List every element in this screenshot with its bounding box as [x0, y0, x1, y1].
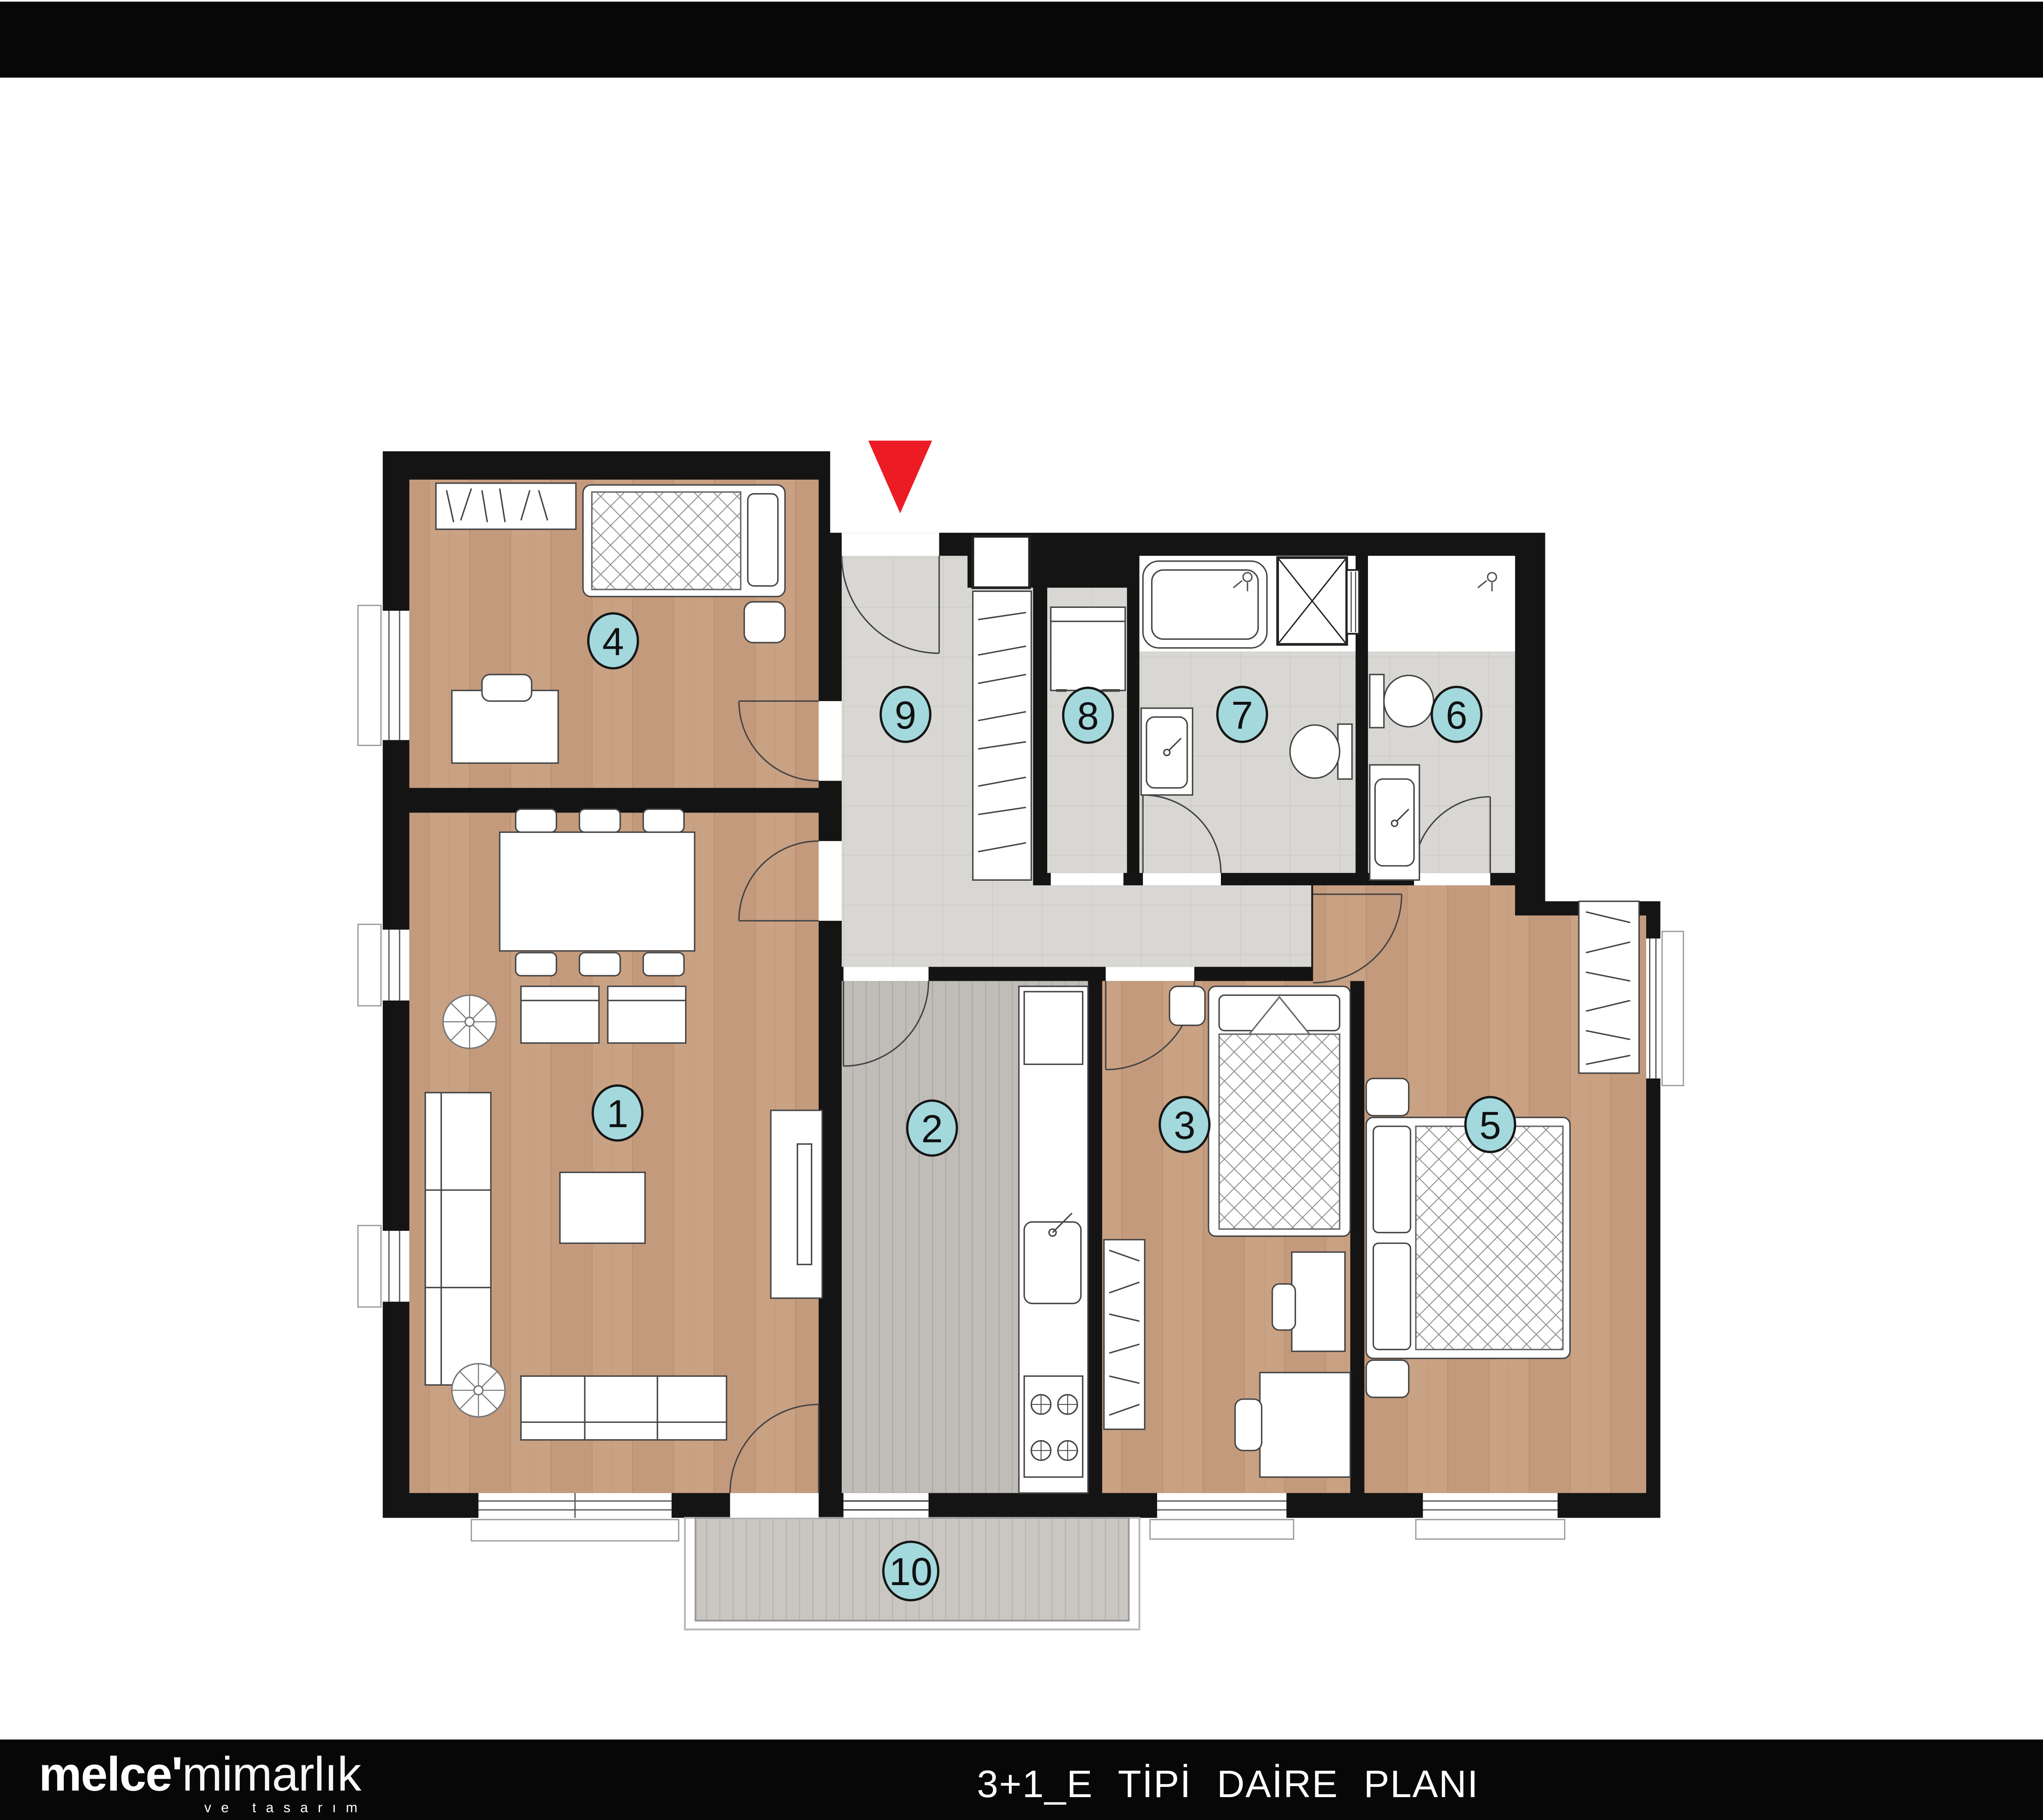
svg-text:8: 8: [1077, 695, 1099, 738]
chair-icon: [482, 674, 532, 701]
svg-text:4: 4: [602, 620, 624, 663]
nightstand-icon: [1366, 1360, 1409, 1397]
floor-plan-drawing: 1 2 3 4 5 6 7 8 9 10: [347, 409, 1737, 1634]
chair-icon: [1272, 1284, 1295, 1330]
badge-room-4: 4: [588, 613, 638, 668]
closet-icon: [436, 483, 576, 529]
stove-icon: [1024, 1376, 1083, 1477]
badge-room-6: 6: [1432, 687, 1481, 741]
double-bed-icon: [1366, 1117, 1570, 1358]
single-bed-icon: [1209, 986, 1350, 1236]
window-room5-bottom: [1416, 1493, 1565, 1539]
vent-grille: [1347, 570, 1359, 634]
wardrobe-icon: [1104, 1240, 1145, 1429]
plant-icon: [452, 1364, 505, 1417]
svg-text:7: 7: [1232, 694, 1253, 737]
fridge-icon: [1024, 992, 1083, 1064]
window-salon-left-1: [358, 925, 409, 1006]
badge-room-10: 10: [883, 1542, 938, 1600]
logo-tagline: ve tasarım: [204, 1800, 367, 1816]
studio-logo: melce'mimarlık: [39, 1750, 361, 1798]
room8-opening: [1051, 873, 1124, 885]
svg-text:2: 2: [921, 1108, 943, 1151]
svg-text:6: 6: [1446, 694, 1467, 737]
svg-text:5: 5: [1480, 1104, 1501, 1147]
bath-6-wet-zone: [1368, 556, 1515, 652]
room-2-furniture: [1019, 986, 1088, 1493]
nightstand-icon: [1366, 1079, 1409, 1116]
svg-text:10: 10: [889, 1550, 932, 1594]
nightstand-icon: [1169, 986, 1205, 1025]
window-salon-left-2: [358, 1226, 409, 1307]
duct-shaft: [973, 536, 1030, 588]
window-room4-left: [358, 605, 409, 746]
nightstand-icon: [744, 602, 785, 643]
washing-machine-icon: [1051, 607, 1125, 690]
sofa-bottom-icon: [521, 1376, 726, 1440]
dining-table-icon: [500, 809, 695, 976]
desk-icon: [1260, 1373, 1350, 1477]
chair-icon: [1235, 1399, 1262, 1451]
svg-text:1: 1: [607, 1092, 628, 1136]
sofa-left-icon: [425, 1093, 491, 1385]
room-8-fixtures: [1051, 607, 1125, 690]
badge-room-1: 1: [593, 1085, 642, 1140]
logo-bold-text: melce': [39, 1747, 182, 1801]
dresser-icon: [1292, 1252, 1345, 1351]
svg-text:9: 9: [895, 694, 916, 737]
svg-text:3: 3: [1174, 1104, 1196, 1147]
entrance-arrow-icon: [868, 441, 932, 514]
tv-unit-icon: [771, 1110, 822, 1298]
window-room5-right: [1646, 931, 1683, 1085]
badge-room-9: 9: [881, 687, 930, 741]
footer-bar: melce'mimarlık ve tasarım 3+1_E TİPİ DAİ…: [0, 1740, 2043, 1820]
toilet-icon: [1370, 674, 1433, 728]
top-title-bar: [0, 2, 2043, 78]
hall-closet-icon: [973, 591, 1031, 880]
sheet-caption: 3+1_E TİPİ DAİRE PLANI: [977, 1762, 1479, 1806]
kitchen-sink-icon: [1024, 1213, 1081, 1303]
badge-room-3: 3: [1160, 1097, 1209, 1152]
window-salon-bottom: [472, 1493, 679, 1541]
single-bed-icon: [583, 485, 785, 596]
badge-room-2: 2: [907, 1101, 957, 1155]
floor-plan-sheet: { "title_block": { "title": "3+1_E TİPİ …: [0, 0, 2043, 1820]
plant-icon: [443, 995, 496, 1048]
kitchen-balcony-door: [843, 1493, 928, 1518]
badge-room-7: 7: [1217, 687, 1267, 741]
logo-light-text: mimarlık: [182, 1747, 361, 1801]
badge-room-8: 8: [1063, 688, 1113, 743]
badge-room-5: 5: [1465, 1097, 1515, 1152]
toilet-icon: [1290, 724, 1352, 779]
window-room3-bottom: [1150, 1493, 1294, 1539]
sink-icon: [1370, 765, 1419, 880]
wardrobe-icon: [1579, 901, 1639, 1073]
sink-icon: [1141, 708, 1193, 795]
coffee-table-icon: [560, 1172, 645, 1243]
